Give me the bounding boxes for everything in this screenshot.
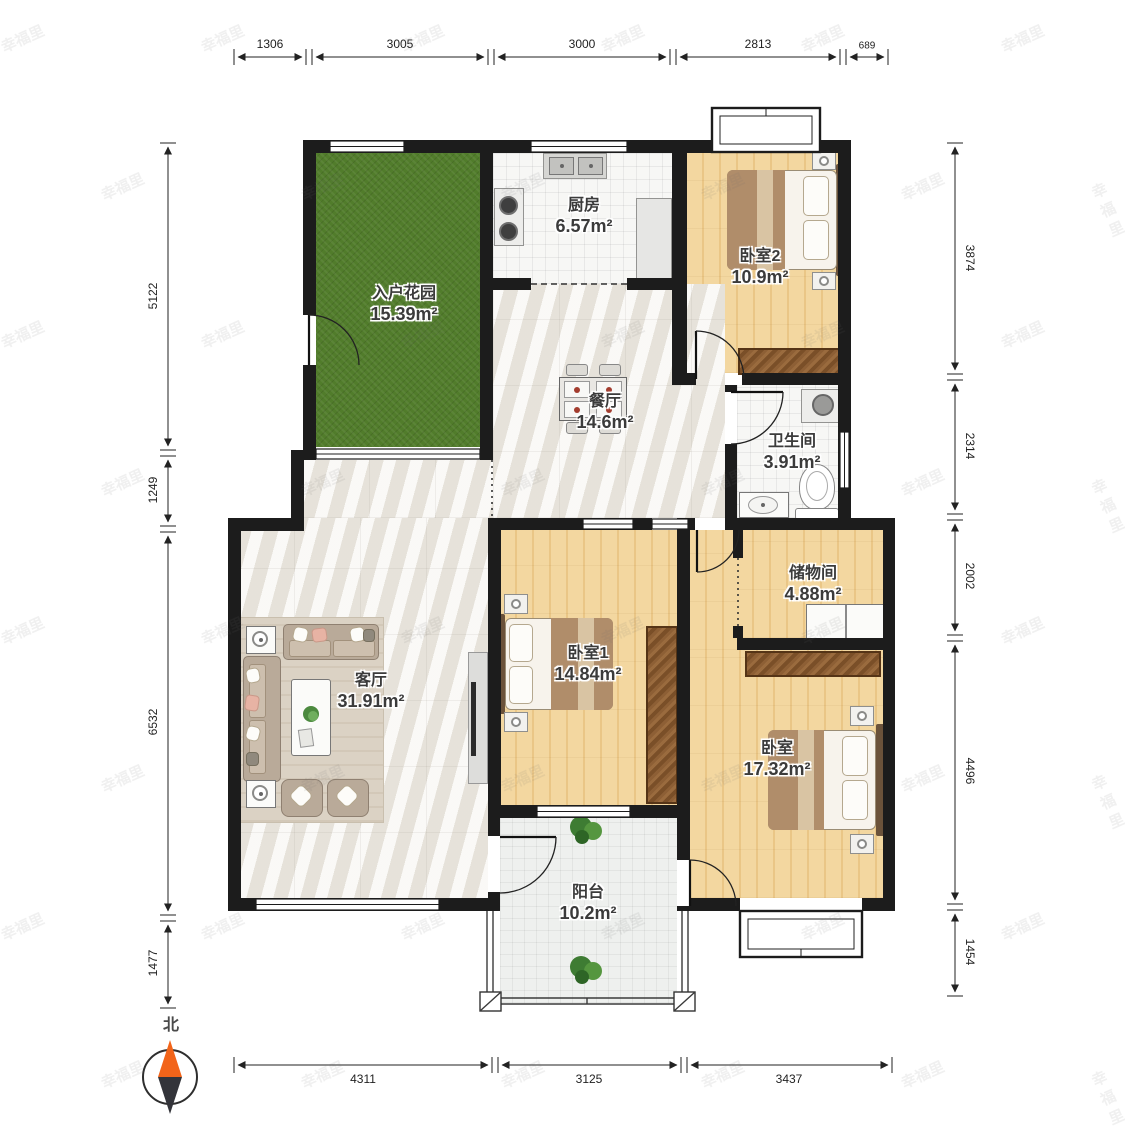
room-name: 卫生间 [763, 431, 820, 452]
room-label-storage: 储物间 4.88m² [784, 563, 841, 605]
room-name: 厨房 [555, 195, 612, 216]
door-balcony-living [500, 837, 556, 893]
dim-label: 6532 [146, 709, 160, 736]
dim-label: 689 [859, 41, 876, 52]
door-entry-garden [309, 315, 359, 365]
room-label-garden: 入户花园 15.39m² [370, 283, 437, 325]
compass-north-needle [158, 1040, 182, 1077]
window-living-south [256, 899, 439, 910]
room-name: 卧室 [743, 738, 810, 759]
room-name: 入户花园 [370, 283, 437, 304]
door-bedroom-corridor [697, 530, 739, 572]
dim-label: 3437 [776, 1072, 803, 1086]
walls [228, 140, 895, 911]
dim-label: 3874 [963, 245, 977, 272]
opening-bedroom1 [652, 519, 688, 529]
room-label-bathroom: 卫生间 3.91m² [763, 431, 820, 473]
dim-label: 5122 [146, 283, 160, 310]
window-garden-top [330, 141, 404, 152]
compass-south-needle [158, 1077, 182, 1114]
dim-label: 3005 [387, 37, 414, 51]
dim-label: 1454 [963, 939, 977, 966]
compass-north-label: 北 [163, 1011, 179, 1035]
window-kitchen-top [531, 141, 627, 152]
room-label-bedroom: 卧室 17.32m² [743, 738, 810, 780]
window-bedroom1-top [583, 519, 633, 529]
window-bedroom1-south [537, 806, 630, 817]
dim-label: 1306 [257, 37, 284, 51]
dim-label: 4311 [350, 1072, 376, 1086]
floor-plan-canvas: 入户花园 15.39m² 厨房 6.57m² 卧室2 10.9m² 餐厅 14.… [0, 0, 1125, 1125]
bay-window-bedroom [740, 899, 862, 957]
bay-window-bedroom2 [712, 108, 820, 153]
room-area: 4.88m² [784, 584, 841, 605]
room-area: 17.32m² [743, 759, 810, 780]
room-area: 14.6m² [576, 412, 633, 433]
dim-label: 2002 [963, 563, 977, 590]
room-name: 餐厅 [576, 391, 633, 412]
dim-label: 1477 [146, 950, 160, 977]
room-name: 卧室2 [731, 246, 788, 267]
dim-label: 2314 [963, 433, 977, 460]
room-name: 客厅 [337, 670, 404, 691]
dim-label: 2813 [745, 37, 772, 51]
structure-layer [0, 0, 1125, 1125]
dim-label: 4496 [963, 758, 977, 785]
room-label-kitchen: 厨房 6.57m² [555, 195, 612, 237]
open-boundaries [492, 284, 738, 626]
door-bedroom2 [696, 331, 744, 379]
compass [143, 1040, 197, 1114]
room-area: 14.84m² [554, 664, 621, 685]
room-label-bedroom2: 卧室2 10.9m² [731, 246, 788, 288]
room-area: 6.57m² [555, 216, 612, 237]
room-area: 10.2m² [559, 903, 616, 924]
window-garden-south [316, 449, 480, 459]
room-area: 3.91m² [763, 452, 820, 473]
room-area: 10.9m² [731, 267, 788, 288]
dim-label: 3000 [569, 37, 596, 51]
room-label-balcony: 阳台 10.2m² [559, 882, 616, 924]
room-name: 阳台 [559, 882, 616, 903]
dim-label: 1249 [146, 477, 160, 504]
room-label-dining: 餐厅 14.6m² [576, 391, 633, 433]
room-label-living: 客厅 31.91m² [337, 670, 404, 712]
dim-label: 3125 [576, 1072, 603, 1086]
room-name: 储物间 [784, 563, 841, 584]
room-area: 31.91m² [337, 691, 404, 712]
balcony-railing [480, 911, 695, 1011]
room-label-bedroom1: 卧室1 14.84m² [554, 643, 621, 685]
window-bathroom-east [840, 432, 849, 488]
room-name: 卧室1 [554, 643, 621, 664]
room-area: 15.39m² [370, 304, 437, 325]
